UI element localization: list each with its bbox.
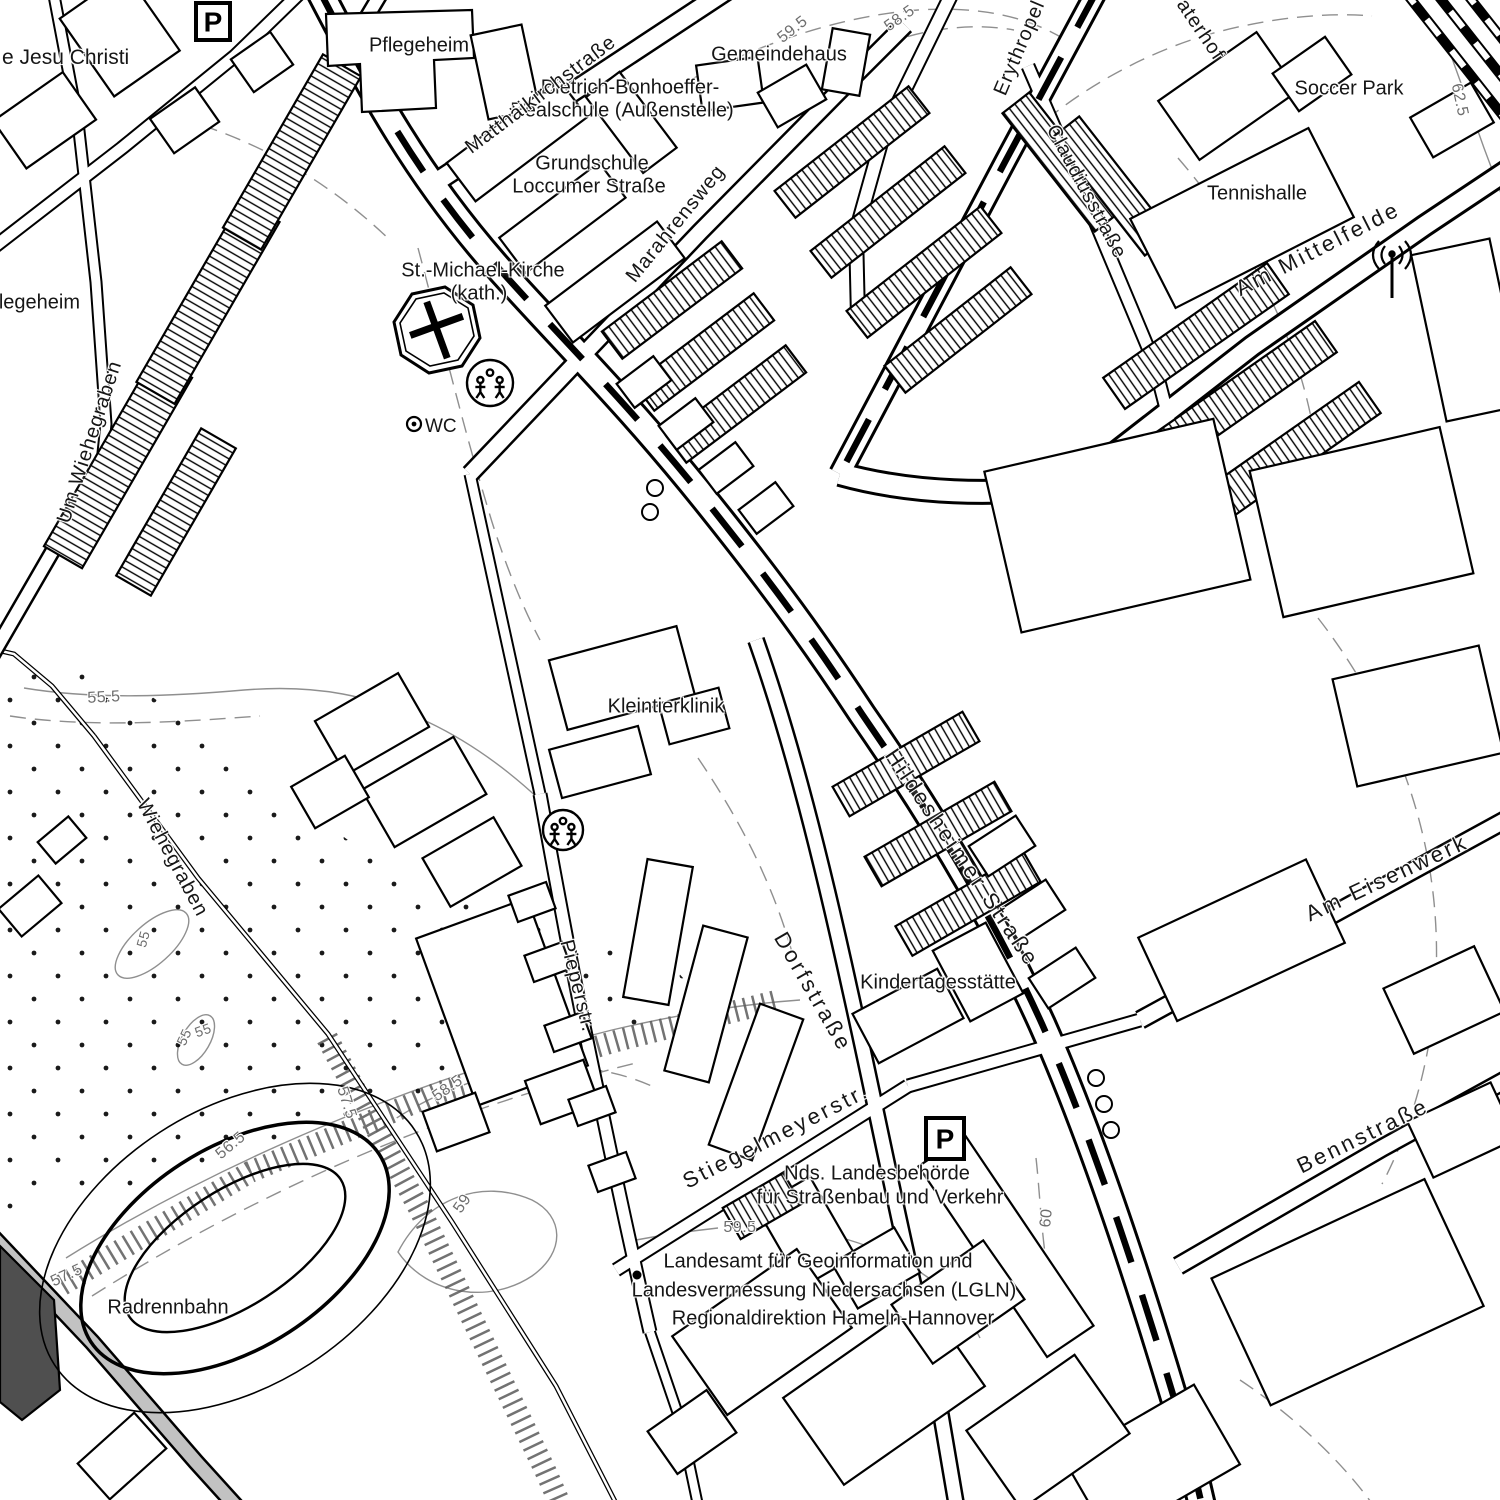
svg-text:P: P	[936, 1124, 955, 1155]
circle-marker	[1088, 1070, 1104, 1086]
circle-marker	[647, 480, 663, 496]
svg-text:P: P	[204, 7, 223, 38]
circle-marker	[642, 504, 658, 520]
map-symbols-overlay: PP	[0, 0, 1500, 1500]
topographic-map: PP e Jesu ChristiPflegeheimDietrich-Bonh…	[0, 0, 1500, 1500]
playground-icon	[467, 360, 513, 406]
benchmark-dot	[633, 1271, 642, 1280]
playground-icon	[543, 810, 583, 850]
parking-icon: P	[926, 1118, 964, 1159]
parking-icon: P	[196, 3, 230, 40]
circle-marker	[1096, 1096, 1112, 1112]
wc-icon	[407, 417, 421, 431]
church-cross-icon	[401, 292, 474, 368]
antenna-icon	[1373, 241, 1411, 298]
circle-marker	[1103, 1122, 1119, 1138]
